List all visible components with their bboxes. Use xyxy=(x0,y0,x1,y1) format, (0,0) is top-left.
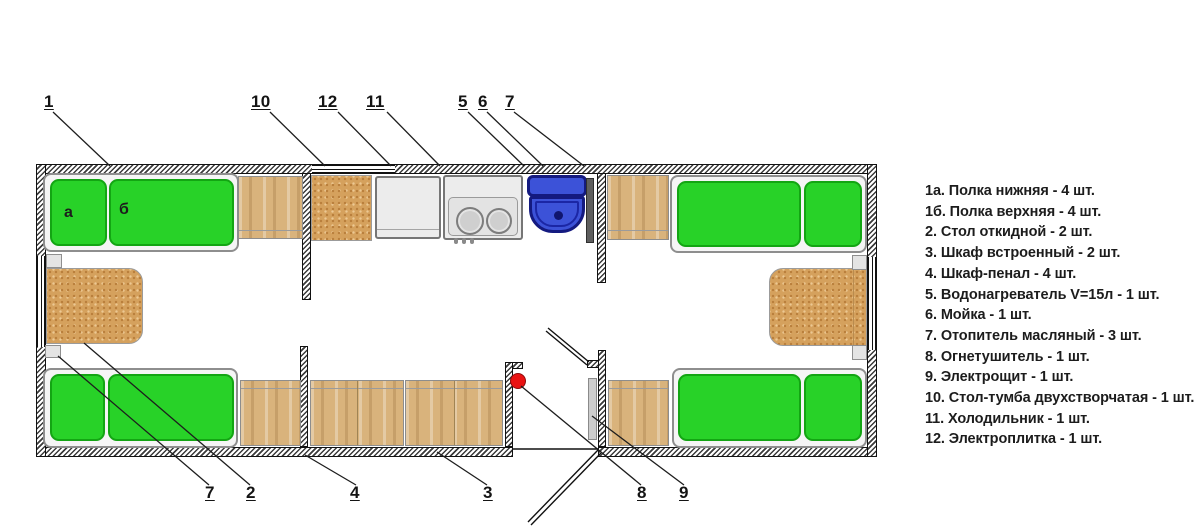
entrance-door-leaf xyxy=(528,450,598,522)
legend-item: 12. Электроплитка - 1 шт. xyxy=(925,429,1194,450)
inner-door-leaf xyxy=(546,331,587,365)
callout-label-5: 5 xyxy=(458,92,468,112)
stove-knob xyxy=(462,238,466,244)
pencil-cabinet-bottom-3 xyxy=(608,380,669,446)
leader-line-5 xyxy=(468,112,524,166)
legend-item: 10. Стол-тумба двухстворчатая - 1 шт. xyxy=(925,388,1194,409)
oil-heater-kitchen xyxy=(586,178,594,243)
pencil-cabinet-bottom-2 xyxy=(310,380,404,446)
callout-label-3: 3 xyxy=(483,483,493,503)
partition-vestibule-right xyxy=(598,350,606,447)
leader-line-11 xyxy=(387,112,440,166)
legend-item: 2. Стол откидной - 2 шт. xyxy=(925,222,1194,243)
legend-item: 4. Шкаф-пенал - 4 шт. xyxy=(925,264,1194,285)
shelf-section xyxy=(678,374,801,441)
leader-line-12 xyxy=(338,112,391,166)
legend-item: 6. Мойка - 1 шт. xyxy=(925,305,1194,326)
legend-item: 5. Водонагреватель V=15л - 1 шт. xyxy=(925,285,1194,306)
oil-heater-left-bottom xyxy=(45,345,61,358)
shelf-section-a xyxy=(50,179,107,246)
electrical-panel xyxy=(588,378,597,440)
legend-item: 8. Огнетушитель - 1 шт. xyxy=(925,347,1194,368)
leader-line-10 xyxy=(270,112,325,166)
window-right xyxy=(867,257,877,350)
leader-line-6 xyxy=(487,112,543,166)
partition-vestibule-right-stub xyxy=(587,360,599,368)
legend-item: 1б. Полка верхняя - 4 шт. xyxy=(925,202,1194,223)
legend-item: 9. Электрощит - 1 шт. xyxy=(925,367,1194,388)
shelf-section xyxy=(108,374,234,441)
stove-knob xyxy=(454,238,458,244)
entrance-door-leaf xyxy=(531,453,601,525)
partition-kitchen-left-top xyxy=(302,173,311,300)
callout-label-7-bottom: 7 xyxy=(205,483,215,503)
heater-right-bottom xyxy=(852,345,867,360)
callout-label-10: 10 xyxy=(251,92,271,112)
stove-knob xyxy=(470,238,474,244)
leader-line-4 xyxy=(305,455,356,485)
legend: 1а. Полка нижняя - 4 шт. 1б. Полка верхн… xyxy=(925,181,1194,450)
legend-item: 3. Шкаф встроенный - 2 шт. xyxy=(925,243,1194,264)
burner-icon xyxy=(486,208,512,234)
callout-label-8: 8 xyxy=(637,483,647,503)
legend-item: 1а. Полка нижняя - 4 шт. xyxy=(925,181,1194,202)
callout-label-12: 12 xyxy=(318,92,338,112)
built-in-cabinet-bottom xyxy=(405,380,503,446)
kitchen-cabinet-table xyxy=(311,175,372,241)
partition-kitchen-left-bottom xyxy=(300,346,308,447)
floor-plan-diagram: а б xyxy=(0,0,1200,530)
shelf-letter-b: б xyxy=(119,201,129,219)
built-in-cabinet-top-right xyxy=(607,175,669,240)
shelf-letter-a: а xyxy=(64,204,73,222)
heater-left-top xyxy=(46,254,62,268)
folding-table-right xyxy=(769,268,867,346)
callout-label-2: 2 xyxy=(246,483,256,503)
callout-label-7-top: 7 xyxy=(505,92,515,112)
folding-table-left xyxy=(46,268,143,344)
window-top xyxy=(312,164,395,174)
burner-icon xyxy=(456,207,484,235)
legend-item: 7. Отопитель масляный - 3 шт. xyxy=(925,326,1194,347)
window-left xyxy=(36,256,46,347)
legend-item: 11. Холодильник - 1 шт. xyxy=(925,409,1194,430)
shelf-section xyxy=(50,374,105,441)
wall-bottom-left-segment xyxy=(36,447,513,457)
sink-drain-icon xyxy=(554,211,563,220)
callout-label-6: 6 xyxy=(478,92,488,112)
water-heater xyxy=(527,175,587,197)
partition-kitchen-right-top xyxy=(597,173,606,283)
fire-extinguisher xyxy=(510,373,526,389)
shelf-section xyxy=(804,374,862,441)
refrigerator xyxy=(375,176,441,239)
leader-line-1 xyxy=(53,112,110,166)
pencil-cabinet-bottom-1 xyxy=(240,380,301,446)
partition-vestibule-left-stub xyxy=(512,362,523,369)
leader-line-7-top xyxy=(514,112,584,166)
shelf-section xyxy=(804,181,862,247)
callout-label-1: 1 xyxy=(44,92,54,112)
sink xyxy=(529,196,585,233)
pencil-cabinet-top-left xyxy=(238,176,303,239)
callout-label-4: 4 xyxy=(350,483,360,503)
shelf-section xyxy=(677,181,801,247)
callout-label-9: 9 xyxy=(679,483,689,503)
inner-door-leaf xyxy=(548,328,589,362)
callout-label-11: 11 xyxy=(366,92,385,112)
wall-bottom-right-segment xyxy=(598,447,877,457)
heater-right-top xyxy=(852,255,867,270)
